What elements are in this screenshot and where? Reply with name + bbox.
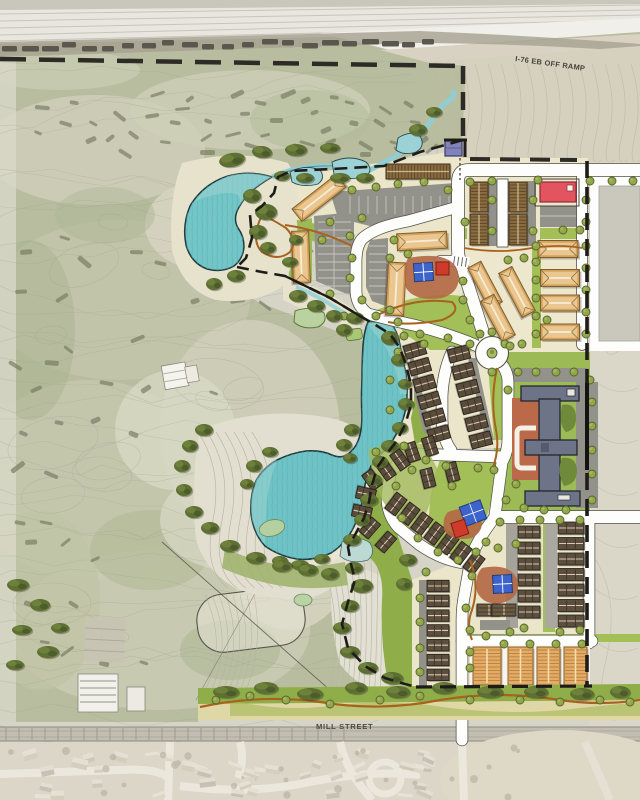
svg-text:MILL STREET: MILL STREET bbox=[316, 722, 373, 731]
